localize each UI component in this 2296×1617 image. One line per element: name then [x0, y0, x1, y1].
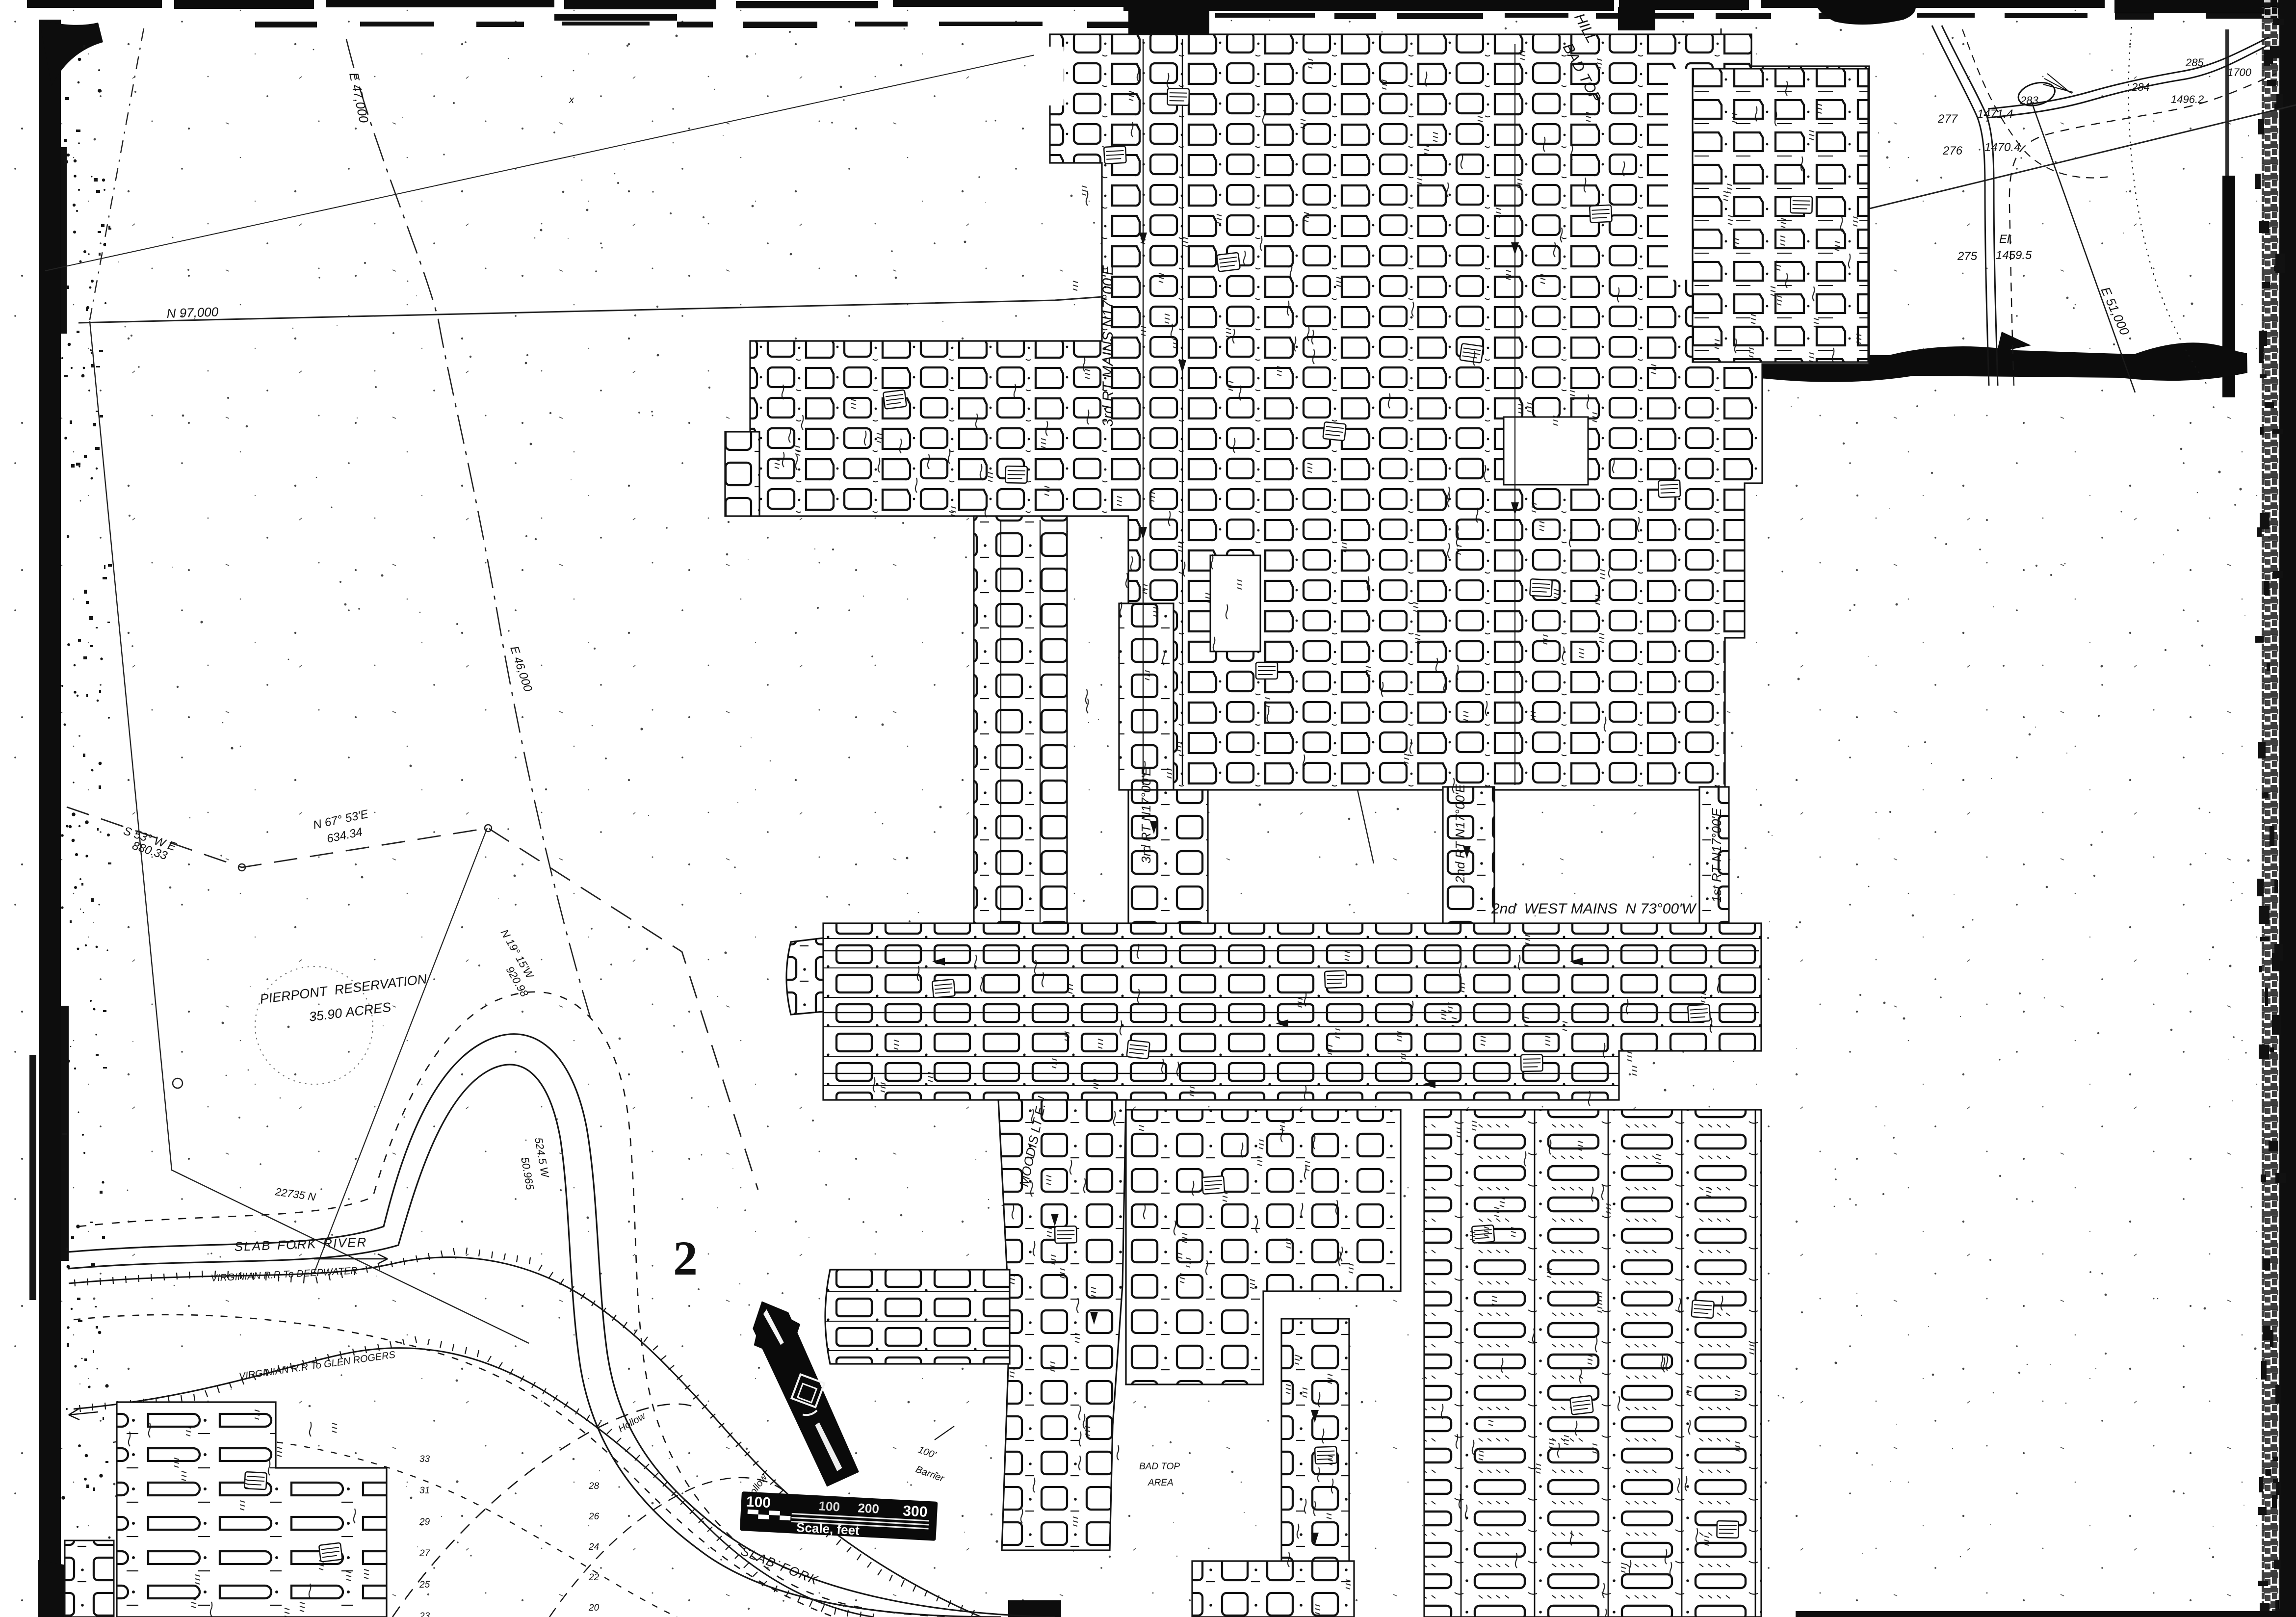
svg-text:AREA: AREA — [1148, 1478, 1174, 1488]
svg-text:1700: 1700 — [2227, 66, 2252, 78]
svg-text:El.: El. — [1999, 233, 2013, 246]
svg-text:22: 22 — [588, 1572, 600, 1583]
svg-text:1459.5: 1459.5 — [1996, 249, 2032, 262]
svg-text:25: 25 — [419, 1580, 430, 1590]
svg-text:284: 284 — [2131, 81, 2150, 93]
svg-text:BAD TOP: BAD TOP — [1139, 1461, 1180, 1472]
svg-text:27: 27 — [419, 1548, 431, 1559]
svg-text:1471.4: 1471.4 — [1977, 107, 2013, 121]
svg-text:1470.4: 1470.4 — [1984, 141, 2020, 154]
svg-text:23: 23 — [419, 1611, 430, 1617]
svg-text:100: 100 — [746, 1494, 771, 1512]
svg-text:24: 24 — [588, 1542, 599, 1552]
svg-text:1‌st RT N17°00'E: 1‌st RT N17°00'E — [1709, 808, 1724, 903]
svg-text:285: 285 — [2185, 56, 2204, 69]
svg-text:3‌rd RT MAINS N17°00'E: 3‌rd RT MAINS N17°00'E — [1100, 265, 1116, 427]
svg-text:26: 26 — [588, 1512, 600, 1522]
svg-text:31: 31 — [419, 1486, 430, 1496]
svg-text:276: 276 — [1942, 144, 1963, 157]
svg-text:277: 277 — [1937, 112, 1958, 126]
svg-text:200: 200 — [858, 1500, 880, 1516]
svg-text:283: 283 — [2020, 94, 2038, 106]
svg-text:2: 2 — [673, 1231, 698, 1285]
svg-text:33: 33 — [419, 1454, 430, 1464]
svg-text:2‌nd WEST MAINS N 73°00'W: 2‌nd WEST MAINS N 73°00'W — [1491, 901, 1697, 917]
svg-text:2‌nd RT N17°00'E: 2‌nd RT N17°00'E — [1453, 784, 1467, 884]
svg-text:x: x — [569, 95, 574, 105]
svg-text:3‌rd RT N17°00'E: 3‌rd RT N17°00'E — [1139, 767, 1153, 863]
svg-text:20: 20 — [588, 1603, 600, 1613]
svg-text:275: 275 — [1957, 250, 1978, 263]
svg-text:100: 100 — [818, 1498, 840, 1514]
svg-text:N 97,000: N 97,000 — [166, 304, 219, 321]
svg-text:300: 300 — [903, 1503, 928, 1520]
svg-text:29: 29 — [419, 1517, 430, 1527]
svg-text:1496.2: 1496.2 — [2171, 93, 2204, 105]
svg-text:28: 28 — [588, 1481, 600, 1491]
